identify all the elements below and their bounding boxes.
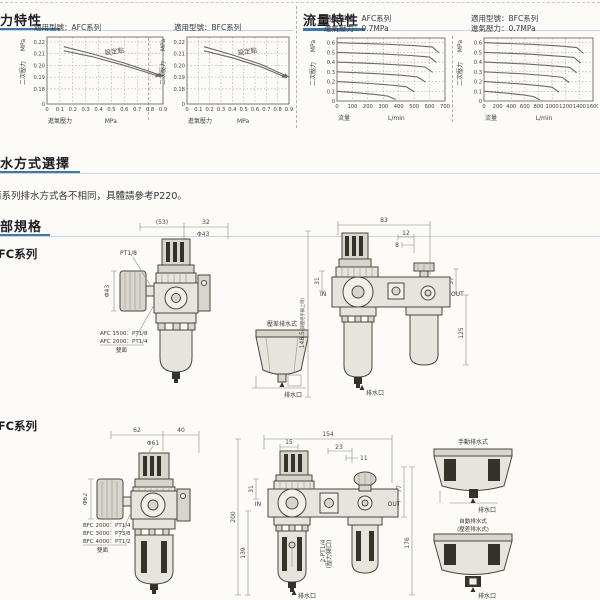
bfc-dim-gauge-dia: Φ62 <box>83 493 89 506</box>
x-tick-label: 0 <box>335 104 338 110</box>
afc-front-regulator-knob <box>336 233 378 277</box>
origin-label: 0 <box>182 102 185 108</box>
y-axis-unit: MPa <box>457 40 464 53</box>
x-axis-unit: L/min <box>536 115 553 122</box>
y-tick-label: 0.4 <box>474 60 483 66</box>
afc-dim-knob-dia: Φ43 <box>197 231 210 238</box>
y-axis-unit: MPa <box>160 39 167 52</box>
x-tick-label: 0 <box>45 107 48 113</box>
x-tick-label: 300 <box>378 104 388 110</box>
afc-dim-knob-width: 32 <box>202 219 210 226</box>
y-tick-label: 0.19 <box>173 75 185 81</box>
x-axis-label: 流量 <box>485 114 497 122</box>
y-tick-label: 0.18 <box>33 87 45 93</box>
x-tick-label: 0.6 <box>120 107 128 113</box>
data-curve <box>337 91 396 99</box>
y-tick-label: 0.2 <box>474 80 482 86</box>
bfc-dim-knob-dia: Φ61 <box>147 440 160 447</box>
afc-drain-type-label: 壓差排水式 <box>267 320 297 328</box>
bfc-port-note-1: BFC 2000：PT1/4 <box>83 523 131 529</box>
y-tick-label: 0.20 <box>173 63 185 69</box>
bfc-front-dim-height: 200 <box>230 511 237 523</box>
bfc-regulator-body <box>131 489 190 521</box>
x-tick-label: 0.3 <box>217 107 225 113</box>
y-tick-label: 0.22 <box>173 40 185 46</box>
data-curve <box>484 82 559 93</box>
afc-front-drain-arrow <box>360 385 365 390</box>
y-tick-label: 0.3 <box>474 70 482 76</box>
y-tick-label: 0.20 <box>33 63 45 69</box>
data-curve <box>484 91 540 100</box>
bfc-flow-chart-block: 適用型號：BFC系列 進氣壓力：0.7MPa 02004006008001000… <box>455 14 598 126</box>
afc-gauge-port-label: PT1/8 <box>120 250 137 257</box>
bfc-front-dim-left: 31 <box>248 485 255 493</box>
x-tick-label: 0.2 <box>69 107 77 113</box>
bfc-flow-pressure-label: 進氣壓力：0.7MPa <box>471 24 598 33</box>
bfc-pressure-chart-block: 適用型號：BFC系列 00.10.20.30.40.50.60.70.80.90… <box>158 23 294 129</box>
x-axis-label: 進氣壓力 <box>48 117 72 125</box>
y-tick-label: 0.6 <box>327 41 335 47</box>
x-tick-label: 800 <box>534 104 544 110</box>
y-tick-label: 0.5 <box>327 50 335 56</box>
afc-port-note-2: AFC 2000：PT1/4 <box>100 339 148 345</box>
afc-flow-pressure-label: 進氣壓力：0.7MPa <box>324 24 450 33</box>
y-tick-label: 0.6 <box>474 41 482 47</box>
bfc-dim-knob-width: 40 <box>177 427 185 434</box>
manual-drain-label: 手動排水式 <box>458 438 488 446</box>
top-scan-divider <box>0 2 600 3</box>
y-tick-label: 0.21 <box>33 52 45 58</box>
data-curve <box>484 62 577 73</box>
afc-pressure-chart-block: 適用型號：AFC系列 00.10.20.30.40.50.60.70.80.90… <box>18 23 168 129</box>
afc-front-dim-width: 83 <box>380 217 388 224</box>
bfc-regulator-knob <box>133 453 175 495</box>
x-tick-label: 1400 <box>573 104 586 110</box>
afc-pressure-model-label: 適用型號：AFC系列 <box>34 23 168 32</box>
x-axis-unit: MPa <box>237 118 250 125</box>
y-axis-label: 二次壓力 <box>159 61 167 85</box>
data-curve <box>337 82 414 92</box>
bfc-flow-chart: 020040060080010001200140016000.10.20.30.… <box>455 34 598 122</box>
y-tick-label: 0.1 <box>327 89 335 95</box>
drain-title-rule <box>0 173 600 174</box>
afc-front-lubricator-bowl <box>406 307 442 365</box>
bfc-front-regulator-knob <box>274 451 314 489</box>
afc-port-note-3: 雙面 <box>116 346 128 354</box>
x-axis-unit: L/min <box>388 115 405 122</box>
x-tick-label: 0.6 <box>251 107 259 113</box>
x-tick-label: 0.8 <box>146 107 154 113</box>
afc-front-out-label: OUT <box>451 291 464 298</box>
afc-front-in-label: IN <box>320 291 326 298</box>
setpoint-annotation: 設定點 <box>104 45 125 57</box>
y-tick-label: 0.5 <box>474 50 482 56</box>
x-tick-label: 0.8 <box>274 107 282 113</box>
manual-drain-cup <box>434 449 512 503</box>
data-curve <box>484 43 583 54</box>
section-column-divider <box>296 6 297 128</box>
bfc-front-dim-height3: 176 <box>404 537 411 549</box>
afc-flow-chart: 01002003004005006007000.10.20.30.40.50.6… <box>308 34 450 122</box>
auto-drain-sublabel: (壓差排水式) <box>457 525 489 533</box>
x-tick-label: 0.1 <box>56 107 64 113</box>
afc-side-view-drawing: (53) 32 Φ43 Φ43 PT1/8 <box>100 213 240 398</box>
afc-dim-gauge-dia: Φ43 <box>104 285 111 298</box>
x-tick-label: 0.5 <box>107 107 115 113</box>
x-tick-label: 0.7 <box>133 107 141 113</box>
afc-regulator-knob <box>158 239 194 273</box>
x-tick-label: 1200 <box>559 104 572 110</box>
bfc-front-dim-b: 23 <box>335 444 343 451</box>
afc-pressure-chart: 00.10.20.30.40.50.60.70.80.90.180.190.20… <box>18 33 168 125</box>
bfc-filter-bowl <box>133 519 175 594</box>
bfc-flow-model-label: 適用型號：BFC系列 <box>471 14 598 23</box>
bfc-front-view-drawing: 154 15 23 11 200 139 31 77 176 <box>228 423 418 600</box>
chart-column-divider-2 <box>452 36 453 122</box>
x-tick-label: 0.9 <box>285 107 293 113</box>
afc-pressure-gauge <box>120 271 154 311</box>
x-tick-label: 0 <box>482 104 485 110</box>
x-tick-label: 0.7 <box>262 107 270 113</box>
x-axis-label: 流量 <box>338 114 350 122</box>
x-tick-label: 1600 <box>586 104 598 110</box>
y-tick-label: 0.4 <box>327 60 336 66</box>
y-axis-label: 二次壓力 <box>19 61 27 85</box>
y-tick-label: 0.19 <box>33 75 45 81</box>
data-curve <box>484 72 569 83</box>
x-tick-label: 0.4 <box>94 107 103 113</box>
bfc-front-lubricator-bowl <box>348 517 382 573</box>
auto-drain-cup <box>434 534 512 592</box>
bfc-pressure-chart: 00.10.20.30.40.50.60.70.80.90.180.190.20… <box>158 33 294 125</box>
data-curve <box>337 52 437 62</box>
bfc-port-note-3: BFC 4000：PT1/2 <box>83 539 131 545</box>
x-tick-label: 0.2 <box>206 107 214 113</box>
data-curve <box>484 52 581 63</box>
y-tick-label: 0.3 <box>327 70 335 76</box>
y-tick-label: 0.21 <box>173 52 185 58</box>
drain-note: 兩系列排水方式各不相同，具體請參考P220。 <box>0 188 187 202</box>
x-tick-label: 600 <box>520 104 530 110</box>
afc-front-filter-bowl <box>340 307 376 388</box>
data-curve <box>337 62 433 72</box>
y-tick-label: 0.2 <box>327 80 335 86</box>
x-tick-label: 400 <box>394 104 404 110</box>
x-tick-label: 200 <box>493 104 503 110</box>
x-tick-label: 0.5 <box>240 107 248 113</box>
y-axis-label: 二次壓力 <box>309 62 317 86</box>
bfc-front-drain-label: 排水口 <box>298 592 316 600</box>
bfc-dim-body-width: 62 <box>133 427 141 434</box>
afc-series-label: AFC系列 <box>0 246 37 262</box>
y-axis-label: 二次壓力 <box>456 62 464 86</box>
x-tick-label: 100 <box>347 104 357 110</box>
y-tick-label: 0.1 <box>474 89 482 95</box>
bfc-pressure-gauge <box>97 479 131 519</box>
bfc-front-filter-bowl <box>274 517 310 592</box>
bfc-gauge-ports-note: (壓力錶口) <box>325 540 333 569</box>
afc-front-view-drawing: 83 12 8 148.5(調壓把手鎖上時) 31 37 125 <box>298 213 478 405</box>
bfc-front-dim-width: 154 <box>322 431 334 438</box>
bfc-front-dim-height2: 139 <box>240 547 247 559</box>
afc-filter-bowl <box>156 313 196 383</box>
auto-drain-label: 自動排水式 <box>459 517 487 525</box>
bfc-front-dim-c: 11 <box>360 455 368 462</box>
x-tick-label: 0.3 <box>82 107 90 113</box>
drain-cup-details-drawing: 手動排水式 排水口 自動排水式 (壓差排水式) 排水口 <box>420 433 535 600</box>
x-tick-label: 600 <box>425 104 435 110</box>
bfc-port-note-4: 雙面 <box>97 546 109 554</box>
bfc-front-out-label: OUT <box>388 501 401 508</box>
drain-section-title: 排水方式選擇 <box>0 153 70 172</box>
bfc-front-dim-a: 15 <box>285 439 293 446</box>
origin-label: 0 <box>332 99 335 105</box>
afc-flow-model-label: 適用型號：AFC系列 <box>324 14 450 23</box>
x-tick-label: 200 <box>363 104 373 110</box>
afc-front-dim-height: 125 <box>458 327 465 339</box>
x-tick-label: 0 <box>185 107 188 113</box>
bfc-pressure-model-label: 適用型號：BFC系列 <box>174 23 294 32</box>
x-tick-label: 0.1 <box>194 107 202 113</box>
afc-front-dim-left: 31 <box>314 277 321 285</box>
x-tick-label: 400 <box>506 104 516 110</box>
x-tick-label: 500 <box>409 104 419 110</box>
origin-label: 0 <box>479 99 482 105</box>
catalog-page: 壓力特性 流量特性 適用型號：AFC系列 00.10.20.30.40.50.6… <box>0 0 600 600</box>
afc-port-note-1: AFC 1500：PT1/8 <box>100 331 148 337</box>
x-tick-label: 700 <box>440 104 450 110</box>
afc-front-dim-total: 148.5(調壓把手鎖上時) <box>299 297 306 348</box>
y-tick-label: 0.18 <box>173 87 185 93</box>
manual-drain-port-label: 排水口 <box>478 506 496 514</box>
afc-regulator-body <box>154 273 210 313</box>
bfc-port-note-2: BFC 3000：PT3/8 <box>83 531 131 537</box>
afc-dim-body-width: (53) <box>156 219 168 226</box>
x-axis-unit: MPa <box>105 118 118 125</box>
afc-front-drain-label: 排水口 <box>366 389 384 397</box>
specs-section-title: 外部規格 <box>0 216 42 235</box>
x-tick-label: 0.4 <box>228 107 237 113</box>
data-curve <box>337 43 439 53</box>
afc-front-dim-a: 12 <box>402 230 410 237</box>
bfc-series-label: BFC系列 <box>0 418 37 434</box>
x-tick-label: 1000 <box>546 104 559 110</box>
afc-port-notes: AFC 1500：PT1/8 AFC 2000：PT1/4 雙面 <box>100 305 154 354</box>
afc-flow-chart-block: 適用型號：AFC系列 進氣壓力：0.7MPa 01002003004005006… <box>308 14 450 126</box>
y-axis-unit: MPa <box>20 39 27 52</box>
data-curve <box>337 72 426 82</box>
y-axis-unit: MPa <box>310 40 317 53</box>
x-axis-label: 進氣壓力 <box>188 117 212 125</box>
afc-front-dim-b: 8 <box>395 242 399 249</box>
auto-drain-port-label: 排水口 <box>478 592 496 600</box>
y-tick-label: 0.22 <box>33 40 45 46</box>
origin-label: 0 <box>42 102 45 108</box>
bfc-front-in-label: IN <box>255 501 261 508</box>
bfc-side-view-drawing: 62 40 Φ61 Φ62 <box>83 423 233 600</box>
